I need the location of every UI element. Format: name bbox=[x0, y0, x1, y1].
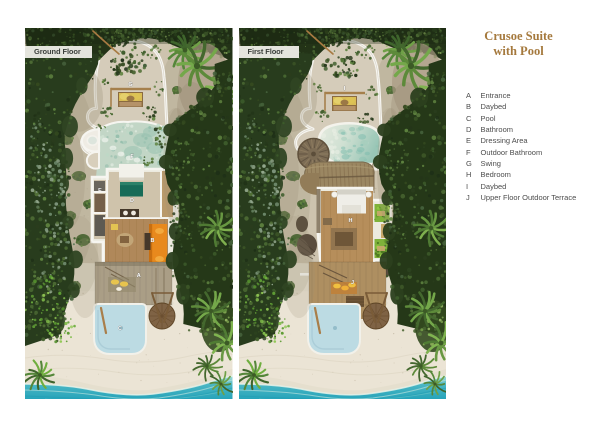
svg-text:A: A bbox=[137, 273, 141, 279]
svg-text:C: C bbox=[118, 326, 122, 332]
svg-text:J: J bbox=[350, 280, 353, 286]
svg-text:G: G bbox=[128, 82, 132, 88]
svg-text:H: H bbox=[348, 218, 352, 224]
svg-text:D: D bbox=[130, 198, 134, 204]
svg-text:B: B bbox=[151, 238, 155, 244]
